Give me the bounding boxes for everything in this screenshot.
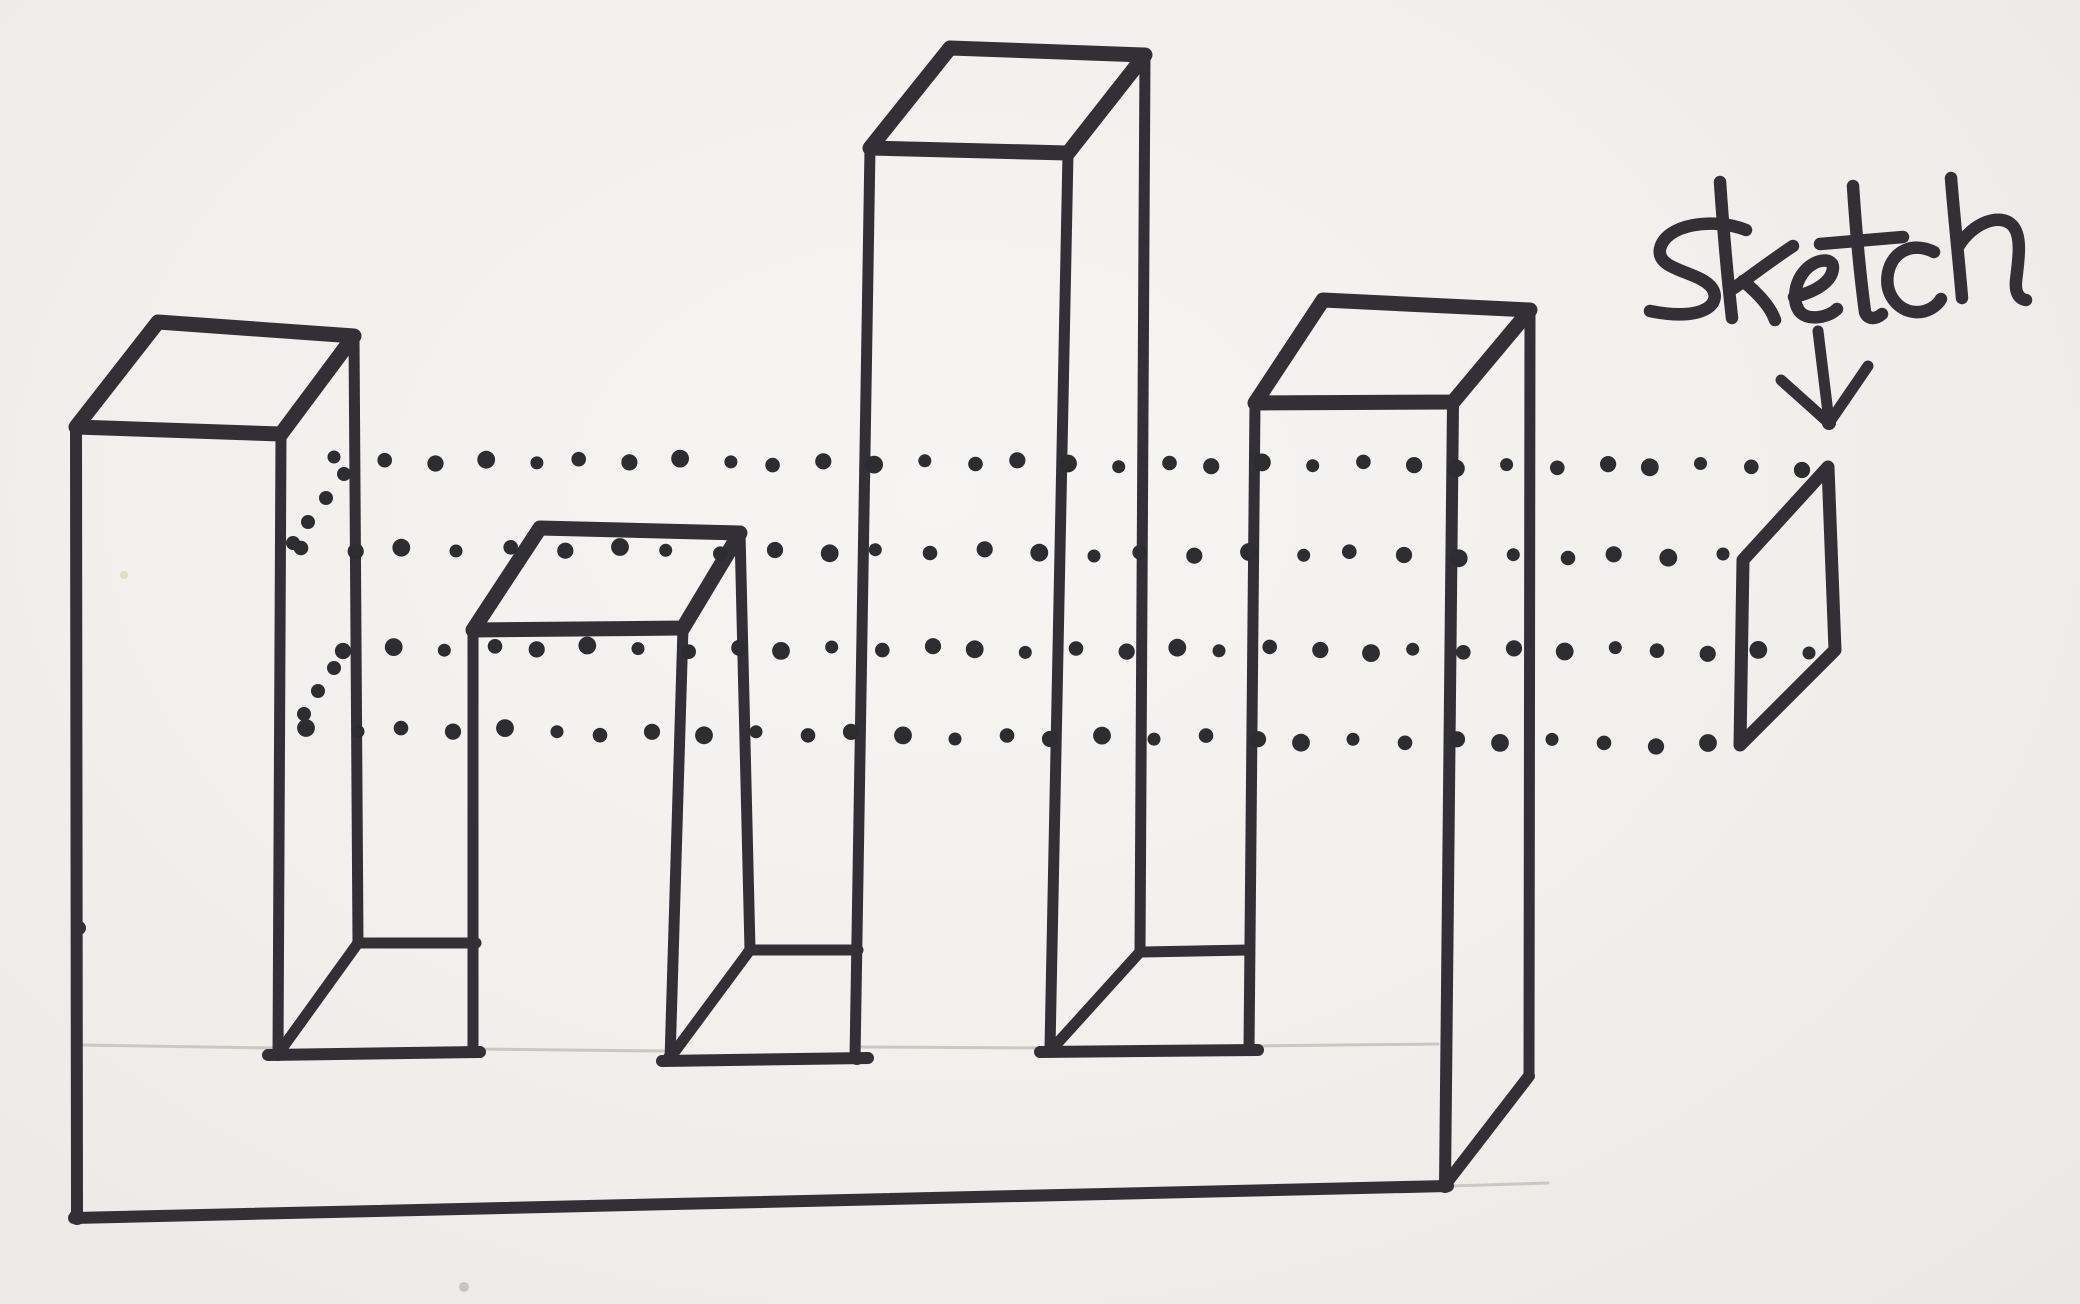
projection-dot bbox=[821, 544, 839, 562]
box3-back-right-edge bbox=[1140, 55, 1145, 952]
projection-dot bbox=[1694, 457, 1707, 470]
pencil-base-bottom-ext bbox=[1450, 1183, 1548, 1186]
projection-dot bbox=[869, 543, 882, 556]
projection-dot bbox=[392, 539, 410, 557]
letter-t-cross bbox=[1820, 237, 1903, 244]
letter-e bbox=[1794, 261, 1837, 318]
projection-dot bbox=[503, 540, 518, 555]
projection-dot bbox=[865, 456, 883, 474]
projection-dot bbox=[438, 644, 451, 657]
projection-dot bbox=[1450, 549, 1468, 567]
projection-dot bbox=[923, 546, 938, 561]
projection-dot bbox=[1556, 643, 1574, 661]
projection-dot bbox=[394, 721, 409, 736]
projection-dot bbox=[966, 640, 984, 658]
projection-dot bbox=[765, 458, 780, 473]
projection-dot bbox=[713, 546, 728, 561]
channel2-front-edge bbox=[662, 1058, 868, 1061]
projection-dot bbox=[767, 542, 783, 558]
ink-junction-node bbox=[1134, 946, 1146, 958]
projection-dot bbox=[1240, 543, 1258, 561]
ink-junction-node bbox=[1437, 1177, 1453, 1193]
channel3-wall-diagonal bbox=[1053, 952, 1140, 1048]
projection-dot-diagonal bbox=[319, 491, 333, 505]
projection-dot bbox=[1609, 641, 1622, 654]
projection-dot bbox=[1699, 734, 1717, 752]
projection-dot bbox=[1042, 731, 1058, 747]
projection-dot bbox=[1491, 734, 1509, 752]
ink-junction-node bbox=[467, 937, 479, 949]
ink-junction-node bbox=[72, 921, 86, 935]
projection-dot bbox=[1347, 733, 1360, 746]
projection-dot bbox=[772, 642, 790, 660]
projection-dot bbox=[949, 733, 962, 746]
projection-dot-diagonal bbox=[297, 707, 311, 721]
projection-dot bbox=[1700, 646, 1716, 662]
projection-dot bbox=[1717, 548, 1730, 561]
sketch-profile-parallelogram bbox=[1740, 467, 1835, 745]
box2-back-right-edge bbox=[740, 533, 750, 950]
projection-dot bbox=[1447, 460, 1465, 478]
projection-dot bbox=[1213, 644, 1226, 657]
projection-dot bbox=[1306, 459, 1319, 472]
box1-front-left-edge bbox=[76, 427, 77, 1217]
ink-junction-node bbox=[850, 1051, 864, 1065]
projection-dot bbox=[477, 451, 495, 469]
projection-dot bbox=[801, 728, 816, 743]
projection-dot bbox=[348, 543, 364, 559]
ink-junction-node bbox=[271, 1047, 285, 1061]
letter-c bbox=[1887, 248, 1941, 312]
projection-dot bbox=[1597, 736, 1612, 751]
ink-junction-node bbox=[69, 1209, 85, 1225]
paper-specks-group bbox=[120, 571, 469, 1292]
projection-dot bbox=[731, 640, 747, 656]
projection-dot bbox=[1507, 548, 1520, 561]
projection-dot bbox=[445, 724, 461, 740]
paper-speck bbox=[459, 1282, 469, 1292]
projection-dot bbox=[557, 543, 573, 559]
projection-dot bbox=[1059, 455, 1077, 473]
projection-dot bbox=[496, 719, 514, 737]
projection-dot bbox=[1398, 736, 1413, 751]
projection-dot bbox=[843, 724, 859, 740]
projection-dot bbox=[297, 719, 315, 737]
projection-dot-diagonal bbox=[337, 467, 351, 481]
ink-junction-node bbox=[744, 944, 756, 956]
projection-dot bbox=[724, 455, 737, 468]
projection-dot bbox=[1606, 546, 1622, 562]
pencil-construction-group bbox=[82, 1044, 1548, 1186]
box1-back-right-edge bbox=[354, 336, 358, 943]
projection-dot bbox=[1000, 728, 1015, 743]
channel1-wall-diagonal bbox=[278, 943, 358, 1054]
box2-front-right-edge bbox=[670, 628, 683, 1060]
projection-dot bbox=[1356, 455, 1371, 470]
box4-back-right-edge bbox=[1529, 310, 1530, 1076]
projection-dot bbox=[551, 725, 564, 738]
projection-dot bbox=[925, 638, 941, 654]
projection-dot bbox=[1406, 457, 1422, 473]
projection-dot bbox=[1650, 643, 1665, 658]
arrow-right-wing bbox=[1829, 366, 1868, 423]
box1-front-right-edge bbox=[278, 434, 281, 1054]
projection-dot bbox=[750, 725, 763, 738]
projection-dot bbox=[1253, 454, 1271, 472]
sketch-profile-group bbox=[1740, 467, 1835, 745]
projection-dot bbox=[1019, 646, 1032, 659]
projection-dot bbox=[611, 538, 629, 556]
projection-dot bbox=[335, 643, 351, 659]
box4-top-face bbox=[1255, 300, 1530, 403]
letter-h-hump bbox=[1958, 220, 2026, 300]
paper-sketch-page: sketch sketch bbox=[0, 0, 2080, 1304]
handwriting-group bbox=[1650, 178, 2026, 423]
box3-front-right-edge bbox=[1050, 153, 1068, 1048]
projection-dot bbox=[571, 452, 586, 467]
projection-dot bbox=[1203, 458, 1219, 474]
projection-dot bbox=[450, 545, 463, 558]
projection-dot bbox=[1546, 733, 1559, 746]
channel1-front-edge bbox=[268, 1052, 480, 1055]
projection-dot bbox=[977, 541, 993, 557]
projection-dot bbox=[1641, 458, 1659, 476]
projection-dot bbox=[918, 454, 931, 467]
paper-speck bbox=[120, 571, 128, 579]
projection-dot bbox=[488, 639, 503, 654]
projection-dot bbox=[681, 644, 696, 659]
ink-junction-node bbox=[352, 937, 364, 949]
projection-dot bbox=[1456, 645, 1471, 660]
projection-dot bbox=[1030, 544, 1048, 562]
base-right-bottom-edge bbox=[1445, 1076, 1529, 1185]
ink-junction-node bbox=[1046, 1041, 1060, 1055]
projection-dot bbox=[1069, 641, 1084, 656]
projection-dot bbox=[1009, 452, 1025, 468]
projection-dot bbox=[1093, 727, 1111, 745]
pencil-base-top-right bbox=[1252, 1044, 1438, 1046]
projection-dot-diagonal bbox=[327, 661, 341, 675]
projection-dot bbox=[632, 642, 645, 655]
projection-dot bbox=[1162, 456, 1177, 471]
projection-dot bbox=[1803, 647, 1816, 660]
ink-junction-node bbox=[1242, 1042, 1256, 1056]
box1-top-face bbox=[76, 322, 354, 434]
projection-dot-diagonal bbox=[301, 515, 315, 529]
projection-dot bbox=[1396, 547, 1412, 563]
projection-dot bbox=[1362, 644, 1380, 662]
projection-dot bbox=[529, 641, 545, 657]
base-bottom-edge bbox=[74, 1186, 1448, 1218]
projection-dot bbox=[875, 643, 890, 658]
projection-dot bbox=[1794, 462, 1810, 478]
pencil-base-top-mid2 bbox=[858, 1047, 1048, 1048]
projection-dot bbox=[1088, 550, 1101, 563]
projection-dot bbox=[1600, 456, 1616, 472]
projection-dot bbox=[593, 728, 608, 743]
projection-dot bbox=[1168, 639, 1186, 657]
projection-dot bbox=[1749, 641, 1767, 659]
channel3-back-edge bbox=[1140, 950, 1248, 952]
letter-t-stem bbox=[1853, 186, 1882, 318]
projection-dot bbox=[1262, 640, 1277, 655]
projection-dot bbox=[621, 454, 637, 470]
box4-front-right-edge bbox=[1445, 402, 1453, 1185]
letter-k-leg bbox=[1743, 281, 1775, 320]
projection-dot bbox=[427, 455, 443, 471]
projection-dot bbox=[1186, 548, 1202, 564]
projection-dot-diagonal bbox=[286, 536, 300, 550]
projection-dot bbox=[695, 726, 713, 744]
projection-dot bbox=[530, 456, 543, 469]
ink-junction-node bbox=[663, 1051, 677, 1065]
projection-dot bbox=[1132, 545, 1147, 560]
projection-dot bbox=[815, 453, 831, 469]
projection-dot bbox=[644, 724, 660, 740]
projection-dot bbox=[578, 637, 596, 655]
box3-top-face bbox=[870, 48, 1145, 153]
box4-front-left-edge bbox=[1249, 403, 1255, 1049]
channel2-wall-diagonal bbox=[670, 950, 750, 1058]
projection-dot bbox=[1342, 544, 1357, 559]
projection-dot bbox=[1550, 461, 1565, 476]
projection-dot bbox=[385, 638, 403, 656]
projection-dot bbox=[1112, 460, 1125, 473]
projection-dot bbox=[825, 641, 838, 654]
projection-dots-group bbox=[286, 450, 1816, 755]
pencil-base-top-left bbox=[82, 1045, 274, 1048]
pencil-base-top-mid1 bbox=[476, 1049, 664, 1051]
projection-dot bbox=[968, 457, 983, 472]
letter-k-stem bbox=[1720, 182, 1732, 318]
projection-dot bbox=[1292, 734, 1310, 752]
projection-dot bbox=[1312, 642, 1328, 658]
projection-dot bbox=[1449, 731, 1465, 747]
projection-dot bbox=[1659, 549, 1677, 567]
projection-dot bbox=[1506, 640, 1522, 656]
projection-dot bbox=[328, 451, 341, 464]
projection-dot bbox=[1406, 643, 1419, 656]
projection-dot bbox=[1119, 644, 1135, 660]
projection-dot bbox=[894, 727, 912, 745]
projection-dot bbox=[1297, 549, 1310, 562]
projection-dot bbox=[1500, 458, 1513, 471]
box3-front-left-edge bbox=[855, 148, 870, 1058]
projection-dot bbox=[352, 725, 365, 738]
projection-dot bbox=[659, 544, 672, 557]
projection-dot bbox=[1250, 731, 1266, 747]
projection-dot bbox=[1744, 460, 1759, 475]
projection-dot-diagonal bbox=[311, 684, 325, 698]
projection-dot bbox=[671, 450, 689, 468]
channel3-front-edge bbox=[1040, 1050, 1258, 1052]
projection-dot bbox=[1148, 733, 1161, 746]
projection-dot bbox=[377, 453, 392, 468]
projection-dot bbox=[1648, 738, 1664, 754]
projection-dot bbox=[1199, 728, 1214, 743]
projection-dot bbox=[1561, 551, 1576, 566]
sketch-drawing-svg: sketch bbox=[0, 0, 2080, 1304]
